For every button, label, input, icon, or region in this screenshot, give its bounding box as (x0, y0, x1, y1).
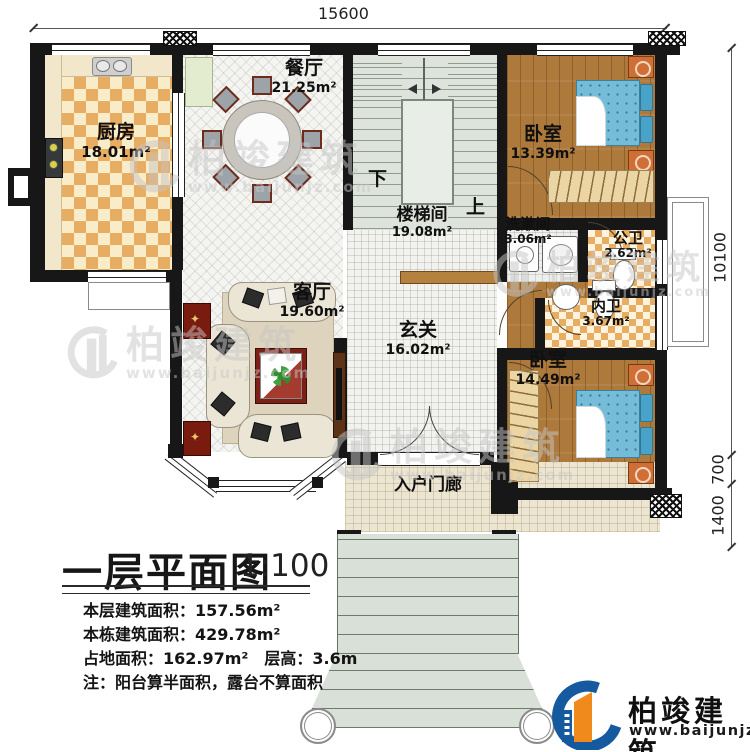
kitchen-floor (62, 77, 172, 270)
dining-chair (202, 130, 222, 149)
entry-steps (337, 534, 519, 654)
door-arc-hall (499, 290, 542, 335)
dimension-right-bottom: 1400 (709, 486, 728, 546)
flue-bump-core (14, 176, 28, 198)
wall-washroom-publicbath (578, 230, 588, 282)
stove-burner (49, 160, 58, 169)
wall-bedroom2-right (655, 348, 667, 500)
window-bay-right (667, 197, 709, 347)
washing-machine-drum (516, 246, 534, 264)
room-label-public-bath: 公卫 2.62m² (600, 230, 656, 261)
bedroom2-duvet (576, 406, 606, 458)
room-label-dining: 餐厅 21.25m² (258, 58, 350, 96)
room-label-bedroom1: 卧室 13.39m² (495, 124, 591, 162)
window-bedroom1-top (537, 44, 633, 56)
bedroom1-closet (548, 170, 654, 203)
stat-footprint-height: 占地面积：162.97m² 层高：3.6m (83, 645, 357, 669)
stair-label-up: 上 (466, 192, 485, 219)
kitchen-sink-bowl (96, 60, 110, 72)
drawing-scale: 1:100 (240, 548, 329, 584)
flue-hatch-top-right (648, 31, 686, 46)
wall-bedroom2-bottom (497, 488, 672, 500)
bedroom1-pillow (640, 116, 653, 143)
media-console-star: ✦ (190, 312, 200, 326)
entry-door-threshold (378, 452, 480, 466)
room-label-stairhall: 楼梯间 19.08m² (382, 206, 462, 240)
dining-cabinet (185, 57, 213, 107)
stair-arrow-left (408, 84, 417, 94)
wall-living-left (170, 270, 182, 455)
brand-url: www.baijunjz.com (629, 723, 750, 739)
dimension-top-value: 15600 (318, 4, 369, 23)
flue-hatch-top-left (163, 31, 197, 46)
window-well-kitchen (88, 282, 170, 310)
stair-treads-top (353, 57, 497, 101)
dining-table-top (234, 112, 290, 168)
bedroom2-nightstand (628, 462, 654, 484)
bedroom2-pillow (640, 394, 653, 422)
stat-note: 注：阳台算半面积，露台不算面积 (83, 669, 323, 693)
room-label-living: 客厅 19.60m² (274, 282, 350, 320)
window-stair-top (378, 44, 470, 56)
washroom-sink-basin (549, 244, 573, 266)
media-console-star: ✦ (190, 430, 200, 444)
tv-screen (336, 368, 342, 420)
bedroom1-nightstand (628, 56, 654, 78)
room-label-inner-bath: 内卫 3.67m² (578, 298, 634, 329)
inner-bath-toilet-tank (592, 280, 616, 291)
wall-right-top (655, 43, 667, 230)
public-bath-toilet-bowl (613, 260, 635, 290)
dimension-line-top (33, 28, 667, 29)
stair-landing (401, 99, 454, 205)
bay-corner-cap (168, 444, 183, 458)
dimension-right-main: 10100 (711, 228, 730, 288)
stair-divider-line (423, 58, 425, 100)
watermark-logo-icon (66, 326, 118, 384)
floor-plan-canvas: 15600 10100 700 1400 下 上 (0, 0, 750, 752)
bedroom1-nightstand (628, 150, 654, 172)
dining-chair (252, 184, 272, 203)
room-label-washroom: 洗漱间 3.06m² (492, 216, 564, 247)
brand-name: 柏竣建筑 (628, 688, 750, 752)
room-label-kitchen: 厨房 18.01m² (60, 122, 172, 161)
foyer-console (400, 271, 498, 284)
stat-building-area: 本栋建筑面积：429.78m² (83, 621, 280, 645)
kitchen-sink-bowl (113, 60, 127, 72)
brand-logo-icon (536, 680, 622, 750)
stat-floor-area: 本层建筑面积：157.56m² (83, 597, 280, 621)
bedroom1-pillow (640, 84, 653, 111)
dining-chair (302, 130, 322, 149)
bedroom2-pillow (640, 427, 653, 455)
stair-arrow-right (432, 84, 441, 94)
bay-corner-cap (208, 477, 219, 488)
dimension-line-right (731, 48, 732, 548)
stove-burner (49, 143, 58, 152)
window-dining-top (213, 44, 310, 56)
wall-foyer-bottom-left (347, 452, 380, 465)
sliding-door-kitchen (172, 93, 185, 197)
bedroom2-nightstand (628, 364, 654, 386)
newel-post-left (300, 708, 336, 744)
stair-label-down: 下 (368, 164, 387, 191)
flue-hatch-porch (650, 494, 682, 518)
inner-bath-sink (552, 284, 580, 310)
title-underline (62, 585, 310, 594)
room-label-porch: 入户门廊 (378, 476, 478, 496)
room-label-foyer: 玄关 16.02m² (382, 320, 454, 358)
plant (271, 366, 291, 386)
room-label-bedroom2: 卧室 14.49m² (500, 350, 596, 388)
wall-left (30, 43, 45, 282)
bay-corner-cap (312, 477, 323, 488)
